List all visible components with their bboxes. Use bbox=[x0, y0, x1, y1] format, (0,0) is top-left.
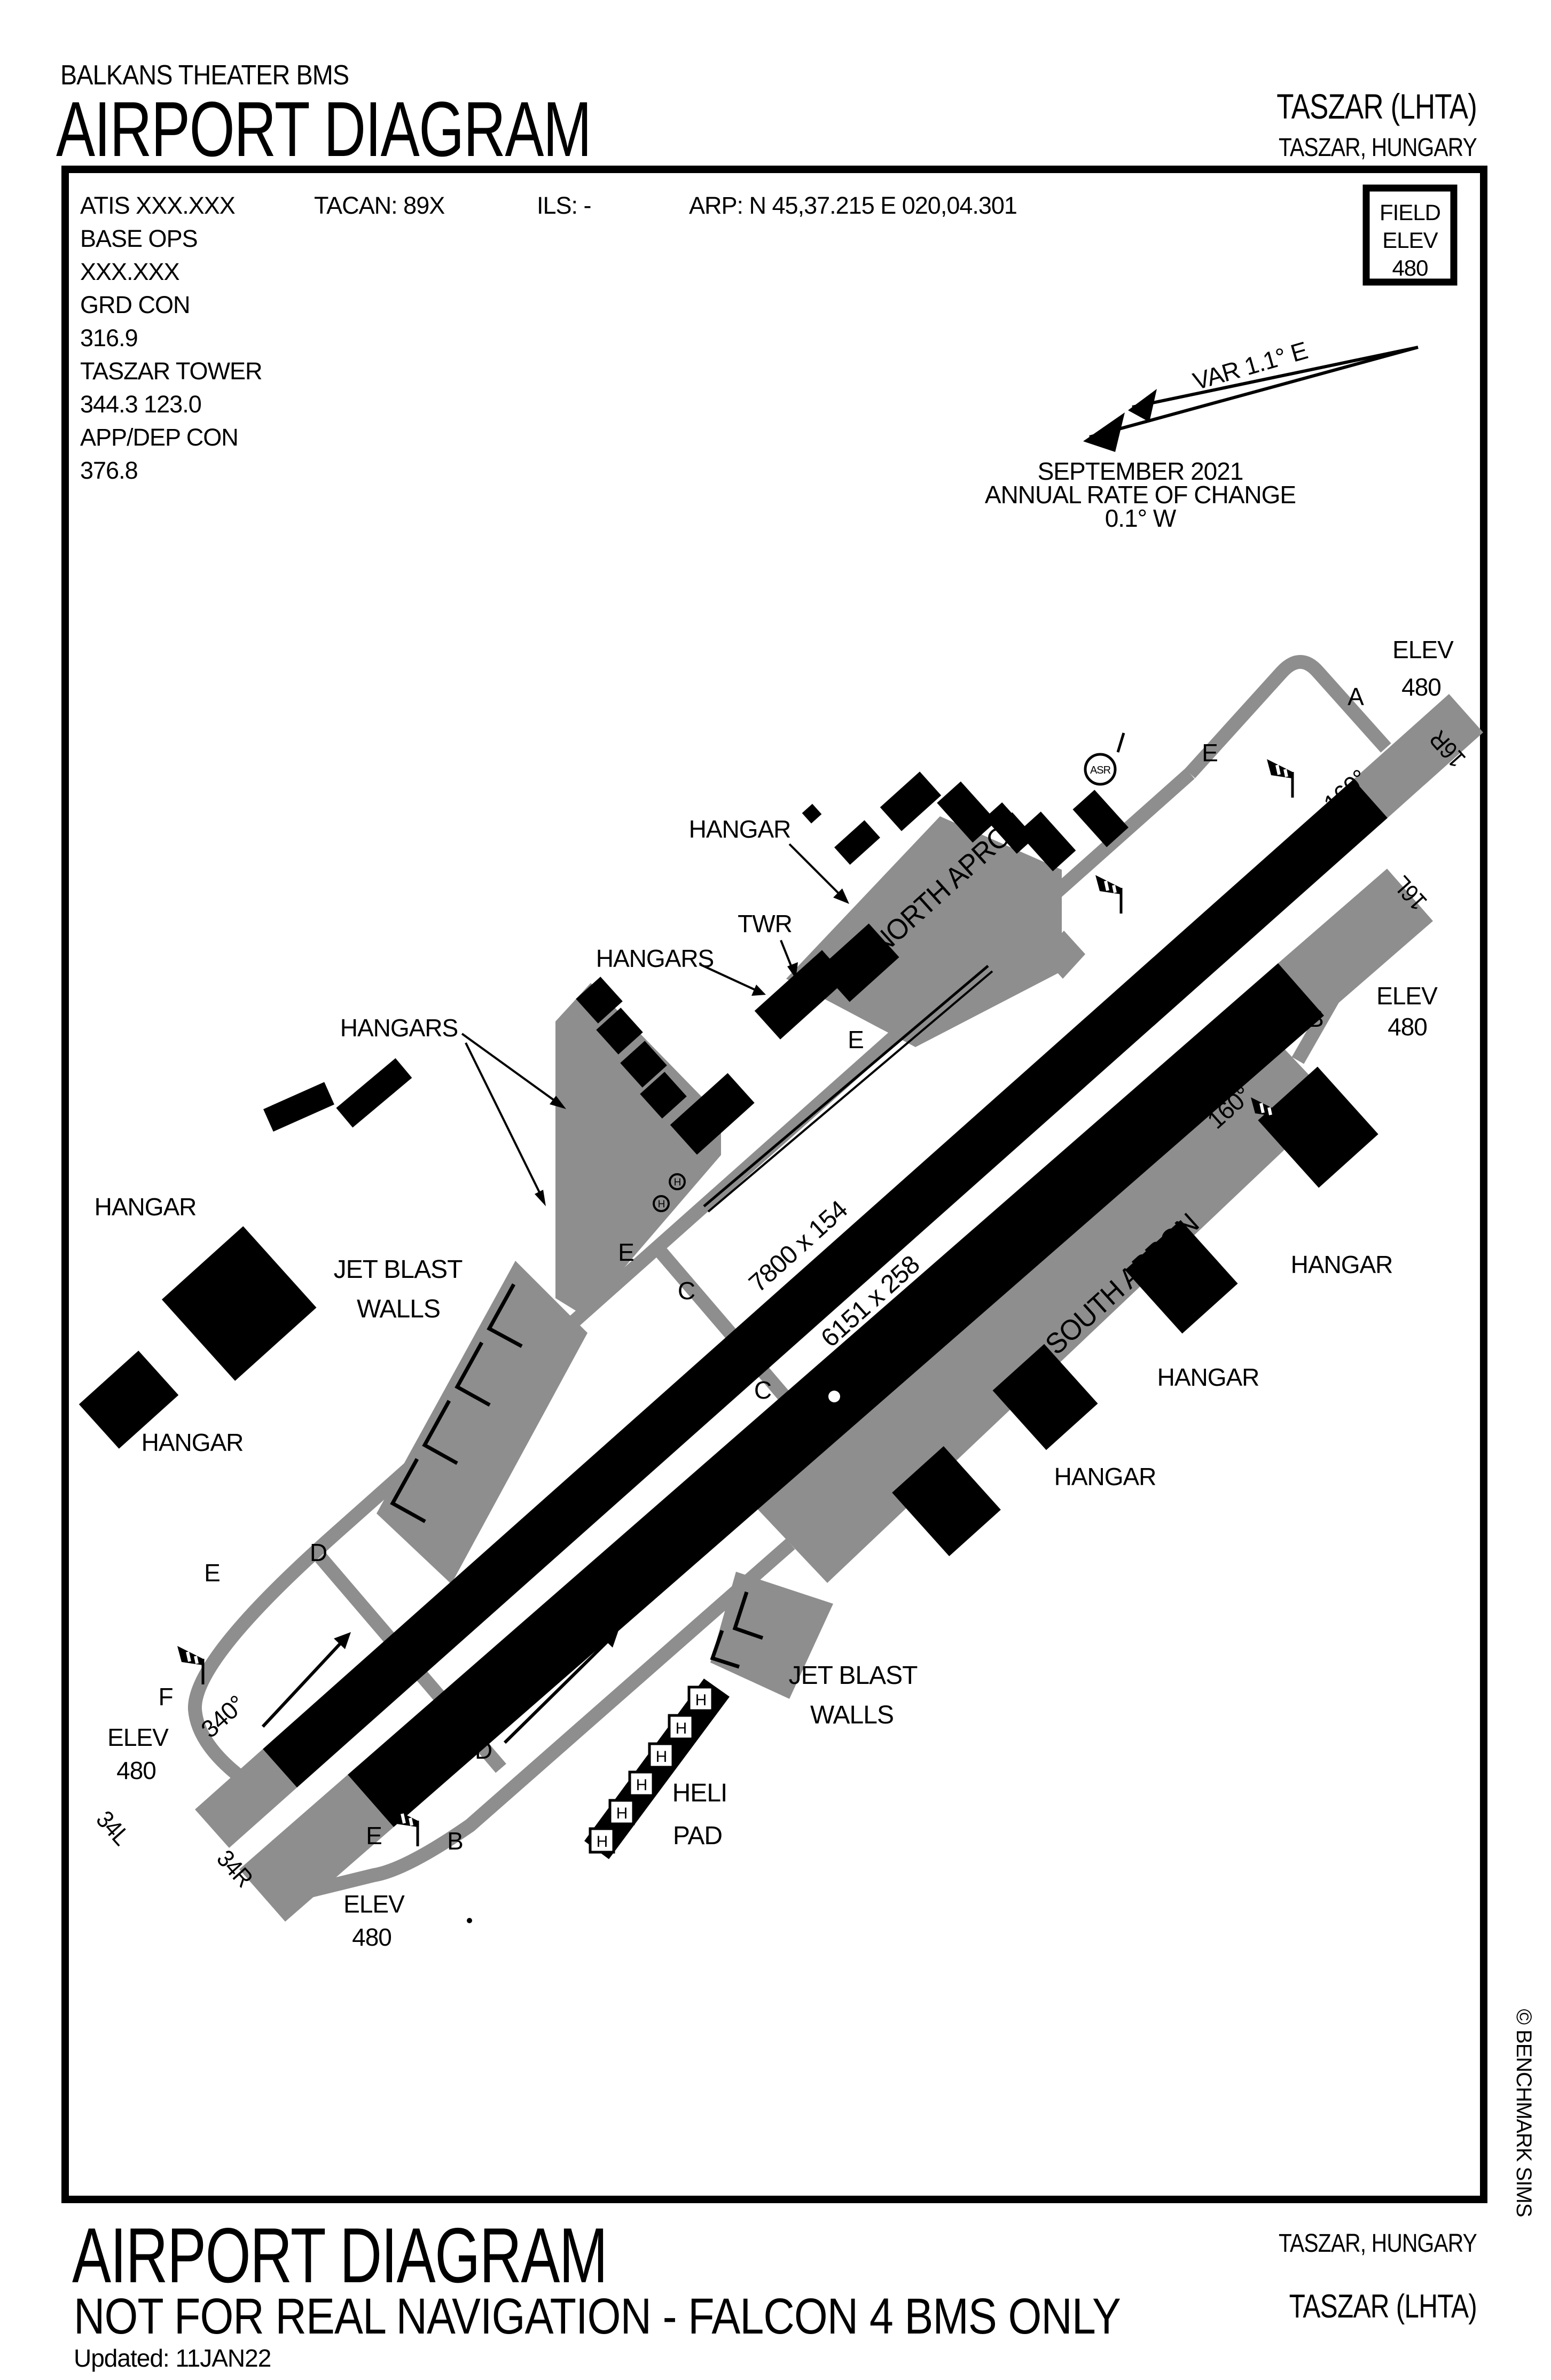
jet-blast-walls-label-left: JET BLAST WALLS bbox=[334, 1255, 463, 1323]
building bbox=[802, 804, 822, 824]
taxiway-label-e: E bbox=[366, 1822, 382, 1850]
elev-label: ELEV bbox=[107, 1723, 169, 1751]
asr-symbol: ASR bbox=[1085, 733, 1124, 784]
field-elev-label: ELEV bbox=[1382, 228, 1438, 253]
elev-value: 480 bbox=[352, 1923, 391, 1951]
hangars-label: HANGARS bbox=[340, 1014, 458, 1042]
comms-line: APP/DEP CON bbox=[80, 424, 238, 451]
hangars-pointer bbox=[462, 1034, 562, 1106]
hangar-building bbox=[834, 820, 880, 865]
variation-value: VAR 1.1° E bbox=[1190, 336, 1311, 395]
elev-16l: ELEV 480 bbox=[1376, 982, 1438, 1041]
taxiway-label-e: E bbox=[1202, 739, 1218, 767]
footer: AIRPORT DIAGRAM NOT FOR REAL NAVIGATION … bbox=[72, 2212, 1477, 2372]
taxiway-label-e: E bbox=[204, 1559, 220, 1587]
building bbox=[336, 1058, 412, 1128]
helipad-h: H bbox=[636, 1776, 647, 1794]
elev-label: ELEV bbox=[343, 1890, 405, 1918]
variation-arrowhead bbox=[1083, 412, 1125, 452]
heli-text: HELI bbox=[672, 1779, 727, 1807]
comms-line: XXX.XXX bbox=[80, 258, 180, 285]
comms-line: 316.9 bbox=[80, 324, 138, 352]
tacan-channel: TACAN: 89X bbox=[314, 192, 445, 219]
walls-text: WALLS bbox=[357, 1295, 440, 1323]
airport-name: TASZAR (LHTA) bbox=[1276, 87, 1477, 126]
taxiway-label-a: A bbox=[1348, 683, 1364, 711]
hangar-label: HANGAR bbox=[142, 1429, 244, 1456]
helipad-h: H bbox=[695, 1691, 707, 1709]
elev-label: ELEV bbox=[1376, 982, 1438, 1010]
jet-blast-walls-label-right: JET BLAST WALLS bbox=[789, 1661, 918, 1729]
hangar-label: HANGAR bbox=[689, 815, 791, 843]
elev-value: 480 bbox=[1388, 1013, 1427, 1041]
building bbox=[263, 1082, 334, 1132]
comms-line: BASE OPS bbox=[80, 225, 198, 252]
twr-label: TWR bbox=[738, 910, 792, 938]
asr-label: ASR bbox=[1090, 764, 1111, 776]
comms-line: 376.8 bbox=[80, 457, 138, 484]
taxiway-a bbox=[1190, 662, 1386, 774]
walls-text: WALLS bbox=[810, 1701, 894, 1729]
variation-block: VAR 1.1° E SEPTEMBER 2021 ANNUAL RATE OF… bbox=[985, 336, 1418, 532]
windsock-icon bbox=[1267, 759, 1292, 798]
hangars-pointer bbox=[466, 1043, 544, 1201]
hangar-label: HANGAR bbox=[1054, 1463, 1156, 1491]
taxiway-label-c: C bbox=[754, 1376, 771, 1404]
helipad-h: H bbox=[658, 1199, 665, 1210]
jet-blast-text: JET BLAST bbox=[789, 1661, 918, 1690]
airport-diagram-page: BALKANS THEATER BMS AIRPORT DIAGRAM TASZ… bbox=[0, 0, 1551, 2380]
page-title: AIRPORT DIAGRAM bbox=[56, 86, 591, 173]
elev-value: 480 bbox=[116, 1757, 156, 1784]
jet-blast-text: JET BLAST bbox=[334, 1255, 463, 1284]
hangar-label: HANGAR bbox=[95, 1193, 197, 1221]
taxiway-label-e: E bbox=[848, 1026, 864, 1054]
windsock-icon bbox=[1095, 875, 1121, 914]
pad-text: PAD bbox=[673, 1822, 722, 1850]
footer-title: AIRPORT DIAGRAM bbox=[72, 2212, 607, 2299]
header: BALKANS THEATER BMS AIRPORT DIAGRAM TASZ… bbox=[56, 60, 1477, 173]
comms-line: 344.3 123.0 bbox=[80, 391, 201, 418]
elev-34l: ELEV 480 bbox=[107, 1723, 169, 1784]
elev-34r: ELEV 480 bbox=[343, 1890, 405, 1951]
comms-info: ATIS XXX.XXX TACAN: 89X ILS: - ARP: N 45… bbox=[80, 192, 1017, 484]
footer-airport: TASZAR (LHTA) bbox=[1289, 2288, 1477, 2325]
runway-reference-dot bbox=[828, 1391, 840, 1402]
runway-end-34l: 34L bbox=[91, 1806, 135, 1851]
helipad-h: H bbox=[597, 1833, 608, 1851]
comms-line: GRD CON bbox=[80, 291, 190, 318]
helipad-h: H bbox=[616, 1805, 628, 1822]
field-elev-title: FIELD bbox=[1380, 200, 1440, 225]
ils-freq: ILS: - bbox=[537, 192, 591, 219]
elev-value: 480 bbox=[1401, 673, 1441, 701]
variation-rate-value: 0.1° W bbox=[1105, 504, 1177, 532]
hangar-building bbox=[162, 1226, 317, 1381]
footer-location: TASZAR, HUNGARY bbox=[1279, 2229, 1477, 2258]
comms-line: TASZAR TOWER bbox=[80, 357, 262, 385]
taxiway-label-e: E bbox=[618, 1238, 634, 1266]
arrowhead bbox=[535, 1190, 546, 1206]
arp-coordinates: ARP: N 45,37.215 E 020,04.301 bbox=[689, 192, 1017, 219]
copyright-text: © BENCHMARK SIMS bbox=[1512, 2009, 1536, 2217]
atis-freq: ATIS XXX.XXX bbox=[80, 192, 236, 219]
taxiway-label-f: F bbox=[158, 1683, 173, 1711]
taxiway-label-b: B bbox=[447, 1827, 463, 1855]
taxiway-label-c: C bbox=[678, 1277, 695, 1305]
elev-16r: ELEV 480 bbox=[1392, 636, 1454, 701]
footer-disclaimer: NOT FOR REAL NAVIGATION - FALCON 4 BMS O… bbox=[74, 2288, 1121, 2345]
taxiway-label-d: D bbox=[475, 1736, 492, 1764]
helipad-h: H bbox=[656, 1748, 667, 1766]
helipad-h: H bbox=[674, 1177, 681, 1188]
heli-pad-label: HELI PAD bbox=[672, 1779, 727, 1850]
airport-location: TASZAR, HUNGARY bbox=[1279, 134, 1477, 162]
hangar-label: HANGAR bbox=[1291, 1251, 1393, 1278]
taxiway-label-c: C bbox=[799, 1435, 816, 1463]
hangar-pointer bbox=[789, 844, 845, 900]
elev-label: ELEV bbox=[1392, 636, 1454, 664]
taxiway-label-d: D bbox=[310, 1539, 327, 1566]
runway-end-34r: 34R bbox=[211, 1845, 258, 1892]
field-elev-value: 480 bbox=[1392, 255, 1428, 280]
taxiway-label-b: B bbox=[1307, 1004, 1323, 1032]
asr-antenna bbox=[1118, 733, 1124, 752]
hangars-label: HANGARS bbox=[596, 945, 714, 972]
map-dot bbox=[467, 1918, 472, 1923]
footer-updated: Updated: 11JAN22 bbox=[74, 2344, 271, 2372]
hangar-label: HANGAR bbox=[1157, 1363, 1259, 1391]
taxiway-label-d: D bbox=[405, 1658, 422, 1685]
hangar-building bbox=[880, 771, 941, 831]
helipad-h: H bbox=[676, 1720, 687, 1737]
